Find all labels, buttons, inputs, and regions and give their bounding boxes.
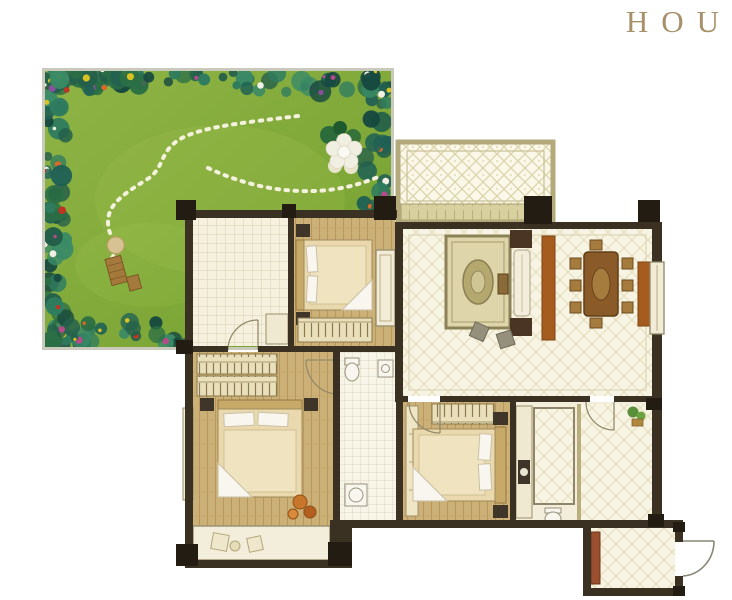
shower [534,408,574,504]
side-table [510,230,532,248]
tv-cabinet [542,236,555,340]
sink [378,360,393,377]
bed-headboard [495,427,506,503]
washer [345,484,367,506]
wardrobe [432,404,494,424]
wardrobe [298,318,372,342]
coffee-table [498,274,508,294]
cabinet [197,354,277,374]
shoe-cabinet [591,532,600,584]
floorplan-page: HOU [0,0,732,600]
entry-door-arc [683,541,714,576]
window-seat [193,526,330,560]
entry-floor [591,528,675,588]
toilet [345,363,359,381]
wardrobe [197,376,277,396]
bay-window [376,250,395,326]
brand-text: HOU [626,4,732,40]
sideboard-cabinet [638,262,650,326]
side-table [510,318,532,336]
bed-headboard [296,240,304,310]
bed-headboard [218,400,302,409]
floorplan-drawing [0,0,732,600]
